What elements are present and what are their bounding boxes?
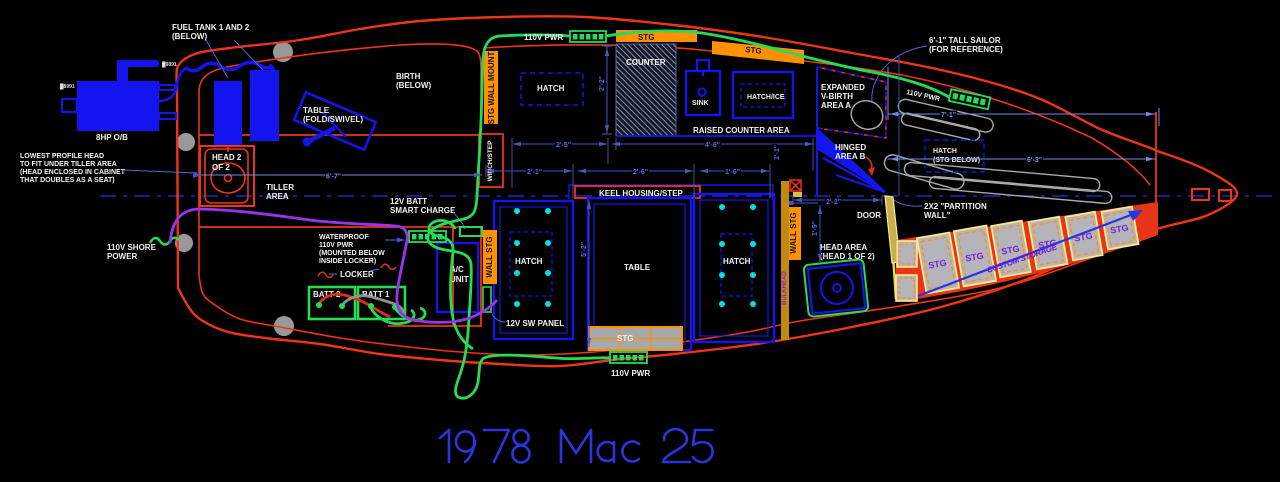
svg-text:TILLER: TILLER [266,183,294,192]
svg-text:2'-2": 2'-2" [826,199,841,206]
svg-text:KEEL HOUSING/STEP: KEEL HOUSING/STEP [599,189,684,198]
svg-text:1'-9": 1'-9" [812,221,819,236]
svg-text:(BELOW): (BELOW) [172,32,207,41]
svg-text:110V PWR: 110V PWR [319,242,353,249]
svg-text:(FOLD/SWIVEL): (FOLD/SWIVEL) [303,115,363,124]
svg-text:6'-1" TALL SAILOR: 6'-1" TALL SAILOR [929,36,1001,45]
svg-text:OF 2: OF 2 [212,163,230,172]
svg-text:HATCH/ICE: HATCH/ICE [747,94,785,101]
svg-text:LOWEST PROFILE HEAD: LOWEST PROFILE HEAD [20,153,104,160]
svg-text:SINK: SINK [692,100,709,107]
svg-text:2'-2": 2'-2" [599,76,606,91]
svg-text:TABLE: TABLE [624,263,651,272]
svg-text:(STG BELOW): (STG BELOW) [933,157,980,164]
svg-text:WALL STG: WALL STG [789,212,798,253]
svg-text:12V SW PANEL: 12V SW PANEL [506,319,564,328]
svg-text:UNIT: UNIT [450,275,469,284]
svg-text:TO FIT UNDER TILLER AREA: TO FIT UNDER TILLER AREA [20,161,117,168]
svg-text:THAT DOUBLES AS A SEAT): THAT DOUBLES AS A SEAT) [20,177,115,184]
svg-text:1'-6": 1'-6" [725,169,740,176]
svg-text:6'-3": 6'-3" [1027,157,1042,164]
svg-text:EXPANDED: EXPANDED [821,83,865,92]
svg-text:STG: STG [638,33,654,42]
svg-text:7'-1": 7'-1" [941,112,956,119]
svg-text:█9891: █9891 [162,61,177,68]
svg-text:HEAD 2: HEAD 2 [212,153,242,162]
svg-text:110V PWR: 110V PWR [611,369,650,378]
svg-text:(BELOW): (BELOW) [396,81,431,90]
svg-text:(HEAD ENCLOSED IN CABINET: (HEAD ENCLOSED IN CABINET [20,169,126,176]
svg-text:HATCH: HATCH [515,257,543,266]
svg-text:WALL": WALL" [924,211,951,220]
svg-text:(MOUNTED BELOW: (MOUNTED BELOW [319,250,385,257]
svg-text:V-BIRTH: V-BIRTH [821,92,853,101]
svg-text:12V BATT: 12V BATT [390,197,427,206]
svg-text:BULKHEAD: BULKHEAD [782,271,788,305]
svg-text:SMART CHARGE: SMART CHARGE [390,206,456,215]
svg-text:2'-1": 2'-1" [527,169,542,176]
svg-text:BIRTH: BIRTH [396,72,421,81]
svg-text:AREA B: AREA B [835,152,866,161]
svg-text:HATCH: HATCH [933,148,957,155]
svg-text:WALL STG: WALL STG [485,236,494,277]
svg-text:5'-2": 5'-2" [581,242,588,257]
svg-text:FUEL TANK 1 AND 2: FUEL TANK 1 AND 2 [172,23,250,32]
svg-text:110V PWR: 110V PWR [524,33,563,42]
svg-text:LOCKER: LOCKER [340,270,374,279]
svg-text:4'-6": 4'-6" [705,142,720,149]
svg-text:HATCH: HATCH [537,84,565,93]
svg-text:█8991: █8991 [60,83,75,90]
svg-text:(FOR REFERENCE): (FOR REFERENCE) [929,45,1003,54]
svg-text:AREA: AREA [266,192,289,201]
svg-text:TABLE: TABLE [303,106,330,115]
svg-text:DOOR: DOOR [857,211,881,220]
svg-text:POWER: POWER [107,252,137,261]
svg-text:STG: STG [745,45,762,56]
svg-text:2'-5": 2'-5" [556,142,571,149]
svg-text:2X2 "PARTITION: 2X2 "PARTITION [924,202,987,211]
svg-text:INSIDE LOCKER): INSIDE LOCKER) [319,258,376,265]
svg-text:HINGED: HINGED [835,143,866,152]
svg-text:COUNTER: COUNTER [626,58,666,67]
svg-text:WINCH/STEP: WINCH/STEP [487,140,494,181]
svg-text:AREA A: AREA A [821,101,851,110]
svg-text:RAISED COUNTER AREA: RAISED COUNTER AREA [693,126,790,135]
svg-text:6'-7": 6'-7" [326,174,341,181]
svg-text:2'-6": 2'-6" [633,169,648,176]
svg-text:(HEAD 1 OF 2): (HEAD 1 OF 2) [820,252,875,261]
svg-text:HATCH: HATCH [723,257,751,266]
svg-text:8HP O/B: 8HP O/B [96,133,128,142]
svg-text:STG WALL MOUNT: STG WALL MOUNT [487,52,496,125]
svg-text:HEAD AREA: HEAD AREA [820,243,867,252]
svg-text:1'-1": 1'-1" [774,145,781,160]
svg-text:STG: STG [617,334,633,343]
svg-text:110V SHORE: 110V SHORE [107,243,157,252]
svg-text:WATERPROOF: WATERPROOF [319,234,369,241]
